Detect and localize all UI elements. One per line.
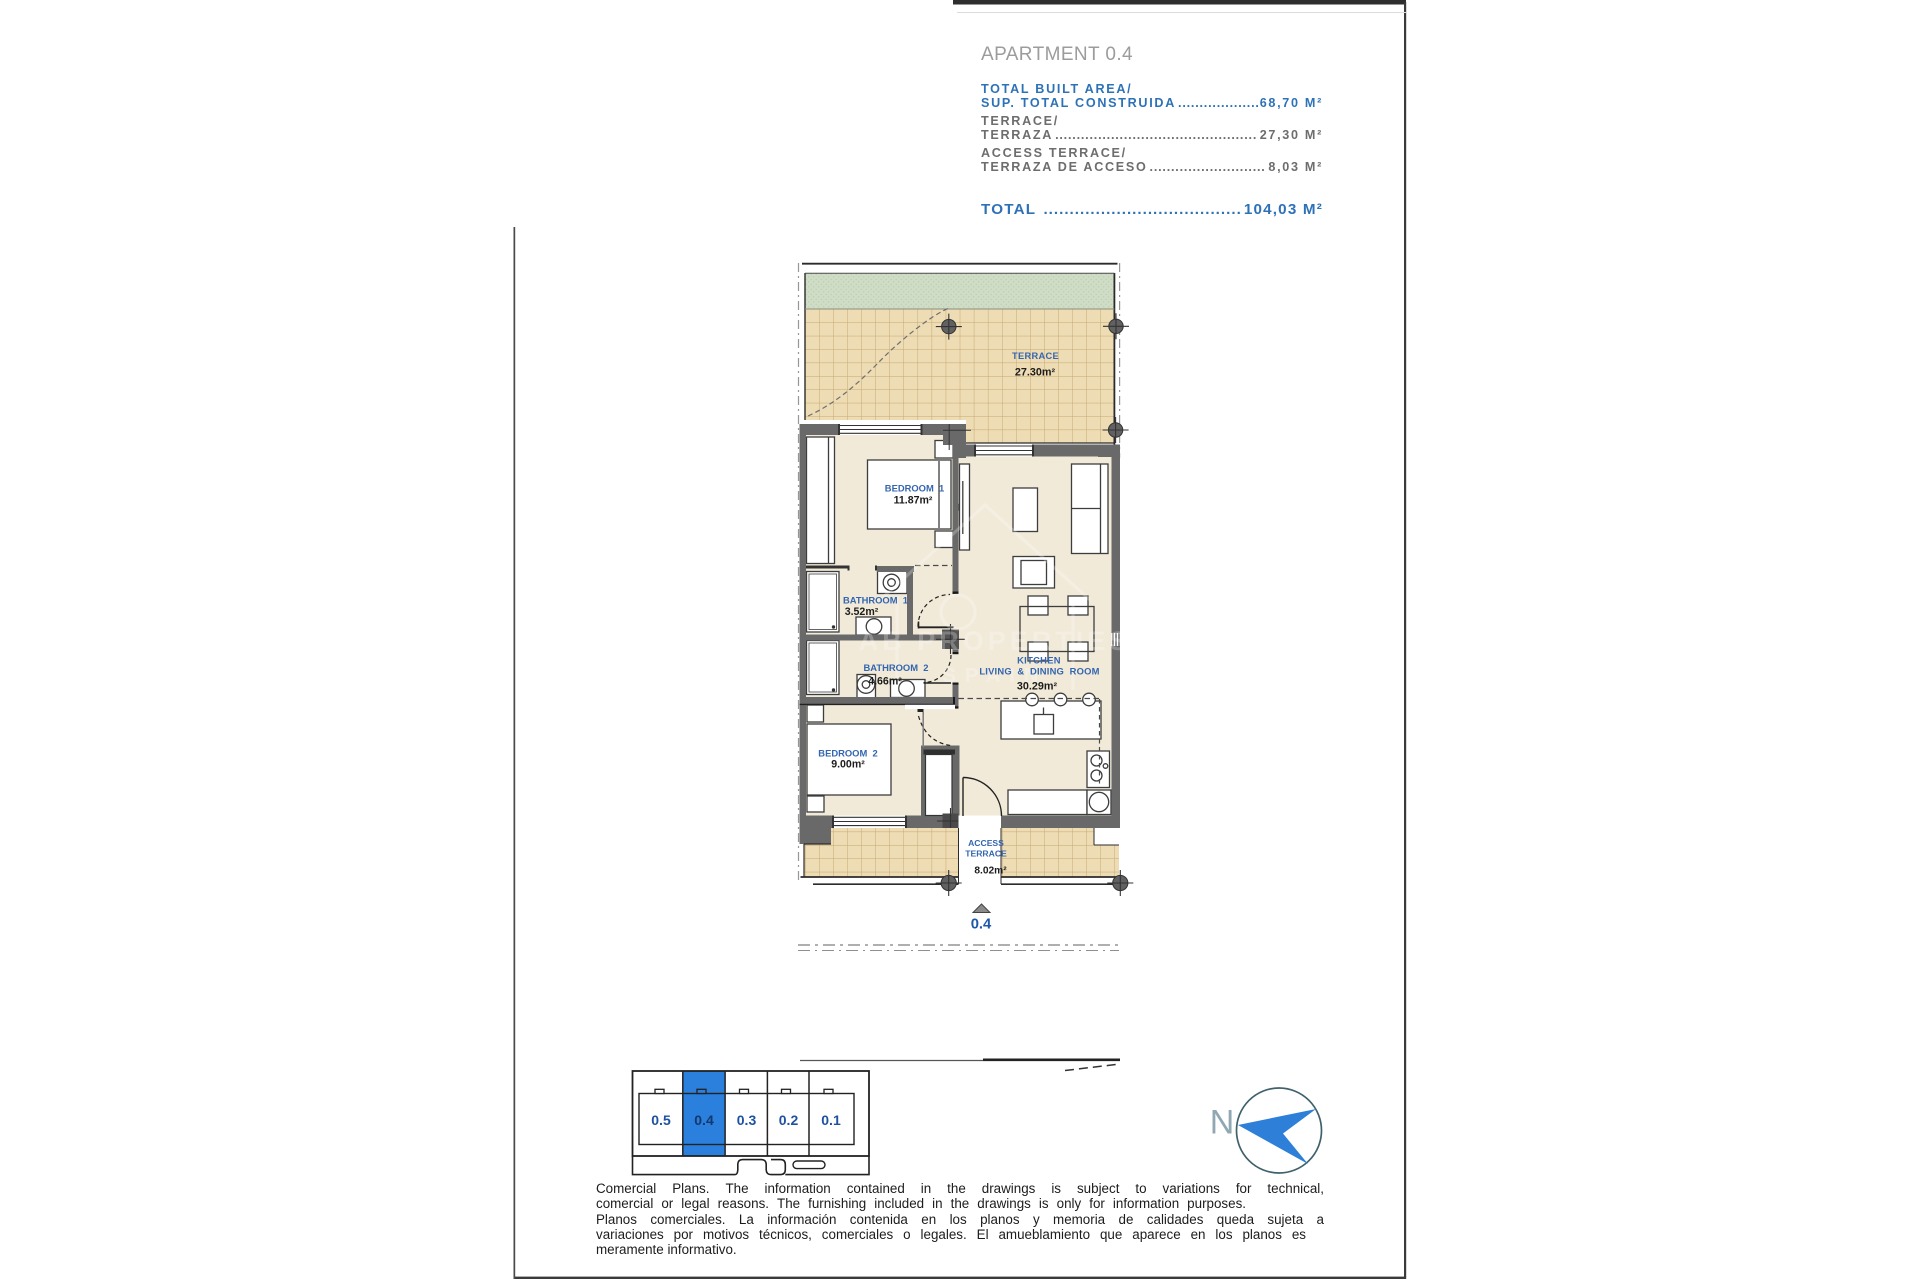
svg-text:0.3: 0.3	[737, 1112, 757, 1128]
svg-text:LIVING & DINING ROOM: LIVING & DINING ROOM	[979, 666, 1099, 677]
svg-text:27.30m²: 27.30m²	[1015, 367, 1056, 379]
svg-text:11.87m²: 11.87m²	[894, 495, 933, 507]
svg-text:BATHROOM 2: BATHROOM 2	[864, 662, 929, 673]
svg-text:BEDROOM 2: BEDROOM 2	[818, 748, 877, 759]
svg-text:4.66m²: 4.66m²	[868, 676, 902, 688]
svg-text:0.4: 0.4	[694, 1112, 714, 1128]
svg-text:0.4: 0.4	[971, 917, 992, 933]
svg-text:KITCHEN: KITCHEN	[1017, 655, 1061, 666]
svg-text:0.5: 0.5	[651, 1112, 671, 1128]
svg-text:0.1: 0.1	[821, 1112, 841, 1128]
svg-text:BATHROOM 1: BATHROOM 1	[843, 595, 908, 606]
svg-text:N: N	[1210, 1104, 1235, 1142]
svg-text:3.52m²: 3.52m²	[845, 606, 879, 618]
svg-text:ACCESS: ACCESS	[968, 838, 1004, 848]
svg-text:TERRACE: TERRACE	[965, 849, 1007, 859]
svg-text:TERRACE: TERRACE	[1012, 351, 1059, 361]
svg-text:AB PROPERTIES: AB PROPERTIES	[859, 626, 1132, 656]
svg-text:0.2: 0.2	[779, 1112, 799, 1128]
svg-text:8.02m²: 8.02m²	[974, 866, 1007, 877]
svg-text:BEDROOM 1: BEDROOM 1	[885, 483, 944, 494]
svg-text:9.00m²: 9.00m²	[831, 759, 865, 771]
svg-text:30.29m²: 30.29m²	[1017, 681, 1058, 693]
